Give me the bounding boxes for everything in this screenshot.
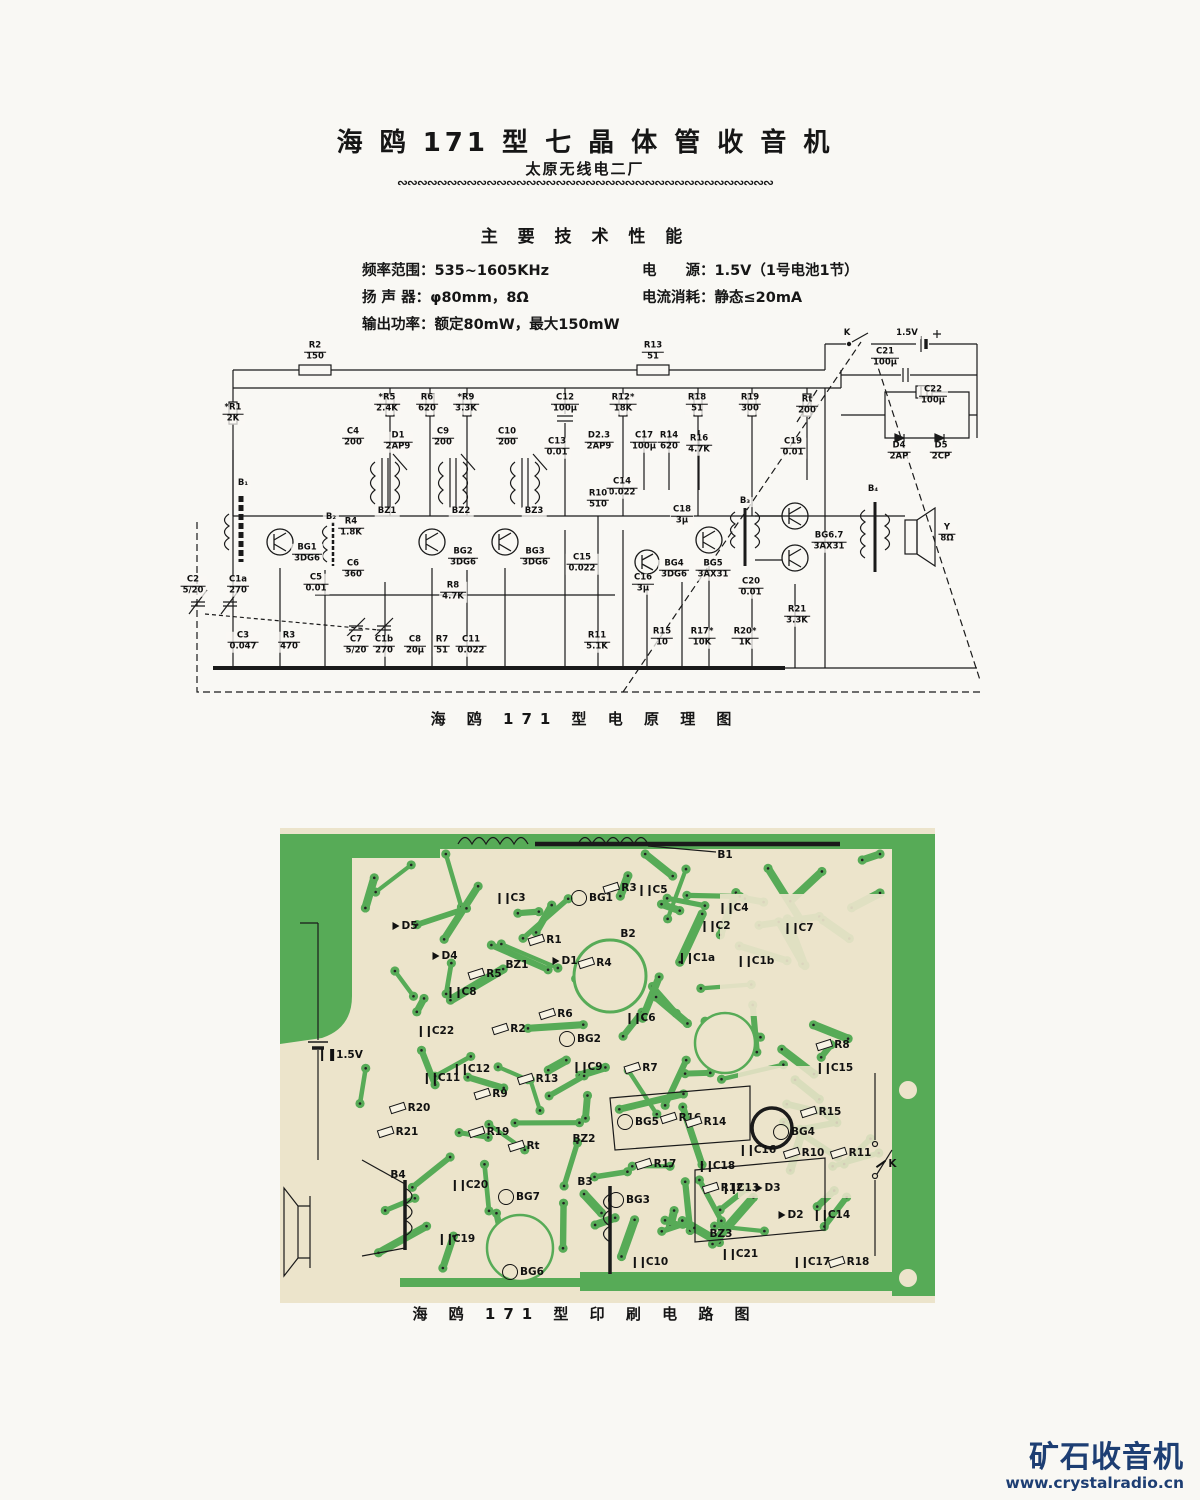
component-designator: C5 — [652, 884, 667, 896]
pcb-component-label: K — [875, 1158, 896, 1170]
component-symbol-glyph — [454, 1180, 464, 1191]
component-designator: C1b — [373, 636, 395, 646]
component-symbol-glyph — [685, 1116, 703, 1129]
component-designator: C6 — [640, 1012, 655, 1024]
component-value: 51 — [686, 404, 708, 415]
pcb-component-label: C9 — [575, 1061, 602, 1073]
schematic-component-label: C3 0.047 — [227, 632, 260, 653]
pcb-component-label: R6 — [539, 1008, 572, 1020]
schematic-component-label: R7 51 — [433, 636, 451, 657]
component-designator: R19 — [739, 394, 761, 404]
component-value: 620 — [416, 404, 438, 415]
schematic-component-label: R20* 1K — [731, 628, 760, 649]
component-value: 51 — [642, 352, 664, 363]
schematic-component-label: C10 200 — [495, 428, 519, 449]
component-designator: C18 — [713, 1160, 735, 1172]
component-designator: C9 — [587, 1061, 602, 1073]
component-symbol-glyph — [773, 1124, 789, 1140]
component-designator: BG4 — [659, 560, 689, 570]
component-value: 510 — [587, 500, 609, 511]
component-value: 100μ — [919, 396, 947, 407]
schematic-component-label: C17 100μ — [629, 432, 659, 453]
component-designator: C16 — [754, 1144, 776, 1156]
component-value: 2K — [223, 414, 244, 425]
component-designator: K — [842, 329, 853, 339]
component-designator: C11 — [438, 1072, 460, 1084]
component-designator: R20* — [732, 628, 759, 638]
pcb-component-label: C17 — [796, 1256, 830, 1268]
schematic-component-label: C2 5/20 — [180, 576, 207, 597]
component-value: 620 — [658, 442, 680, 453]
component-designator: C13 — [545, 438, 570, 448]
component-designator: R6 — [416, 394, 438, 404]
schematic-component-label: BZ1 — [375, 507, 400, 517]
pcb-component-label: BG2 — [559, 1031, 601, 1047]
component-value: 3DG6 — [659, 570, 689, 581]
pcb-component-label: C18 — [701, 1160, 735, 1172]
pcb-component-label: R10 — [784, 1147, 825, 1159]
schematic-component-label: BZ2 — [449, 507, 474, 517]
component-value: 470 — [278, 642, 300, 653]
component-designator: C19 — [453, 1233, 475, 1245]
component-value: 3DG6 — [520, 558, 550, 569]
watermark-site: www.crystalradio.cn — [1006, 1474, 1184, 1492]
pcb-component-label: R14 — [686, 1116, 727, 1128]
component-value: 150 — [304, 352, 326, 363]
component-designator: C18 — [671, 506, 693, 516]
component-designator: R8 — [440, 582, 466, 592]
pcb-component-label: C8 — [449, 986, 476, 998]
scanned-page: 海 鸥 171 型 七 晶 体 管 收 音 机 太原无线电二厂 ∾∾∾∾∾∾∾∾… — [0, 0, 1200, 1500]
component-designator: B₂ — [324, 513, 338, 523]
component-designator: R6 — [557, 1008, 572, 1020]
pcb-component-label: R4 — [578, 957, 611, 969]
component-value: 4.7K — [686, 445, 712, 456]
component-designator: B₄ — [866, 485, 880, 495]
component-value: 3AX31 — [696, 570, 731, 581]
schematic-component-label: BG5 3AX31 — [695, 560, 732, 581]
component-designator: BG1 — [292, 544, 322, 554]
component-designator: C20 — [466, 1179, 488, 1191]
component-value: 0.01 — [781, 448, 806, 459]
component-designator: BG4 — [791, 1126, 815, 1138]
pcb-component-label: R5 — [468, 968, 501, 980]
component-symbol-glyph — [796, 1257, 806, 1268]
component-symbol-glyph — [755, 1184, 762, 1192]
schematic-component-label: C4 200 — [341, 428, 365, 449]
schematic-component-label: 1.5V — [893, 329, 921, 339]
schematic-component-label: R6 620 — [415, 394, 439, 415]
component-value: 0.01 — [304, 584, 329, 595]
component-symbol-glyph — [634, 1257, 644, 1268]
schematic-component-label: C6 360 — [341, 560, 365, 581]
schematic-component-label: BG4 3DG6 — [658, 560, 690, 581]
component-symbol-glyph — [538, 1008, 556, 1021]
component-designator: R1 — [546, 934, 561, 946]
component-designator: K — [888, 1158, 896, 1170]
pcb-component-label: C16 — [742, 1144, 776, 1156]
component-designator: BZ3 — [523, 507, 546, 517]
schematic-component-label: C8 20μ — [403, 636, 427, 657]
component-designator: D5 — [401, 920, 417, 932]
component-symbol-glyph — [517, 1073, 535, 1086]
component-symbol-glyph — [721, 903, 731, 914]
component-designator: B₁ — [236, 479, 250, 489]
schematic-component-label: *R9 3.3K — [452, 394, 480, 415]
component-value: 2.4K — [374, 404, 400, 415]
component-symbol-glyph — [468, 1126, 486, 1139]
component-symbol-glyph — [571, 890, 587, 906]
component-designator: D4 — [441, 950, 457, 962]
component-symbol-glyph — [508, 1140, 526, 1153]
component-value: 3μ — [632, 584, 654, 595]
schematic-component-label: R13 51 — [641, 342, 665, 363]
schematic-component-label: C1a 270 — [226, 576, 250, 597]
component-value: 1.8K — [338, 528, 364, 539]
component-designator: BZ1 — [506, 959, 529, 971]
component-designator: R18 — [686, 394, 708, 404]
component-symbol-glyph — [828, 1256, 846, 1269]
component-designator: C3 — [228, 632, 259, 642]
component-designator: R14 — [658, 432, 680, 442]
schematic-component-label: B₄ — [865, 485, 881, 495]
component-symbol-glyph — [623, 1062, 641, 1075]
component-designator: R4 — [596, 957, 611, 969]
component-designator: R12* — [610, 394, 637, 404]
pcb-component-label: C12 — [456, 1063, 490, 1075]
component-symbol-glyph — [786, 923, 796, 934]
component-designator: B3 — [577, 1176, 592, 1188]
component-designator: Y — [938, 524, 955, 534]
schematic-component-label: BG3 3DG6 — [519, 548, 551, 569]
pcb-component-label: B1 — [717, 849, 732, 861]
component-symbol-glyph — [778, 1211, 785, 1219]
pcb-component-label: C19 — [441, 1233, 475, 1245]
component-symbol-glyph — [377, 1126, 395, 1139]
component-symbol-glyph — [800, 1106, 818, 1119]
pcb-component-label: R7 — [624, 1062, 657, 1074]
component-designator: BG2 — [577, 1033, 601, 1045]
pcb-component-label: C20 — [454, 1179, 488, 1191]
component-designator: D4 — [888, 442, 911, 452]
component-designator: C12 — [551, 394, 579, 404]
schematic-component-label: B₃ — [737, 497, 753, 507]
pcb-component-label: C6 — [628, 1012, 655, 1024]
component-symbol-glyph — [783, 1147, 801, 1160]
schematic-component-label: R10 510 — [586, 490, 610, 511]
component-designator: C2 — [715, 920, 730, 932]
component-designator: C16 — [632, 574, 654, 584]
component-designator: C8 — [461, 986, 476, 998]
component-designator: C3 — [510, 892, 525, 904]
pcb-component-label: BG3 — [608, 1192, 650, 1208]
pcb-component-label: D3 — [755, 1182, 780, 1194]
component-value: 200 — [796, 406, 818, 417]
component-designator: C22 — [919, 386, 947, 396]
pcb-component-label: R11 — [831, 1147, 872, 1159]
component-designator: C15 — [831, 1062, 853, 1074]
component-designator: BZ2 — [450, 507, 473, 517]
schematic-component-label: B₁ — [235, 479, 251, 489]
pcb-component-label: C3 — [498, 892, 525, 904]
component-designator: C14 — [828, 1209, 850, 1221]
component-value: 0.01 — [739, 588, 764, 599]
schematic-component-label: BG2 3DG6 — [447, 548, 479, 569]
pcb-component-label: C4 — [721, 902, 748, 914]
component-designator: B1 — [717, 849, 732, 861]
component-value: 270 — [373, 646, 395, 657]
component-designator: BZ1 — [376, 507, 399, 517]
component-symbol-glyph — [740, 956, 750, 967]
schematic-component-label: R18 51 — [685, 394, 709, 415]
component-value: 360 — [342, 570, 364, 581]
component-symbol-glyph — [498, 1189, 514, 1205]
component-symbol-glyph — [491, 1023, 509, 1036]
schematic-component-label: C15 0.022 — [566, 554, 599, 575]
component-value: 270 — [227, 586, 249, 597]
component-designator: D3 — [764, 1182, 780, 1194]
schematic-component-label: D4 2AP — [887, 442, 912, 463]
schematic-component-label: Rt 200 — [795, 396, 819, 417]
component-value: 0.022 — [567, 564, 598, 575]
component-designator: BZ2 — [573, 1133, 596, 1145]
component-designator: B2 — [620, 928, 635, 940]
component-designator: C21 — [736, 1248, 758, 1260]
component-symbol-glyph — [725, 1183, 735, 1194]
component-designator: C19 — [781, 438, 806, 448]
component-designator: R16 — [686, 435, 712, 445]
schematic-component-label: BG6.7 3AX31 — [811, 532, 848, 553]
schematic-component-label: C14 0.022 — [606, 478, 639, 499]
pcb-component-label: R18 — [829, 1256, 870, 1268]
component-symbol-glyph — [635, 1158, 653, 1171]
schematic-component-label: R4 1.8K — [337, 518, 365, 539]
pcb-layout-diagram: B1 C3 BG1 R3 C5 C4 D5 R1 — [280, 828, 935, 1303]
schematic-component-label: C12 100μ — [550, 394, 580, 415]
component-value: 5.1K — [584, 642, 610, 653]
component-value: 3.3K — [453, 404, 479, 415]
schematic-component-label: R11 5.1K — [583, 632, 611, 653]
component-designator: R17 — [654, 1158, 677, 1170]
component-value: 5/20 — [181, 586, 206, 597]
component-designator: B4 — [390, 1169, 405, 1181]
component-designator: C21 — [871, 348, 899, 358]
schematic-component-label: R8 4.7K — [439, 582, 467, 603]
component-symbol-glyph — [473, 1088, 491, 1101]
component-designator: Rt — [796, 396, 818, 406]
pcb-component-label: C21 — [724, 1248, 758, 1260]
pcb-component-label: BG4 — [773, 1124, 815, 1140]
component-value: 100μ — [551, 404, 579, 415]
component-value: 2CP — [930, 452, 952, 463]
component-symbol-glyph — [681, 953, 691, 964]
component-symbol-glyph — [432, 952, 439, 960]
component-designator: BG3 — [626, 1194, 650, 1206]
pcb-component-label: BG7 — [498, 1189, 540, 1205]
schematic-component-label: K — [841, 329, 854, 339]
schematic-component-label: R2 150 — [303, 342, 327, 363]
pcb-component-label: R15 — [801, 1106, 842, 1118]
pcb-component-label: C15 — [819, 1062, 853, 1074]
component-value: 0.022 — [607, 488, 638, 499]
component-symbol-glyph — [420, 1026, 430, 1037]
pcb-component-label: B2 — [620, 928, 635, 940]
schematic-component-label: *R5 2.4K — [373, 394, 401, 415]
component-symbol-glyph — [321, 1049, 334, 1061]
component-symbol-glyph — [640, 885, 650, 896]
component-designator: R2 — [304, 342, 326, 352]
schematic-caption: 海 鸥 171 型 电 原 理 图 — [0, 708, 1170, 729]
component-symbol-glyph — [703, 921, 713, 932]
schematic-component-label: D1 2AP9 — [383, 432, 414, 453]
component-value: 2AP — [888, 452, 911, 463]
component-symbol-glyph — [441, 1234, 451, 1245]
schematic-component-label: R12* 18K — [609, 394, 638, 415]
component-designator: BG7 — [516, 1191, 540, 1203]
pcb-component-label: BZ1 — [506, 959, 529, 971]
component-designator: D1 — [561, 955, 577, 967]
schematic-component-label: *R1 2K — [222, 404, 245, 425]
component-designator: C11 — [456, 636, 487, 646]
schematic-component-label: C18 3μ — [670, 506, 694, 527]
schematic-component-label: C9 200 — [431, 428, 455, 449]
component-value: 4.7K — [440, 592, 466, 603]
schematic-component-label: R15 10 — [650, 628, 674, 649]
component-designator: R10 — [802, 1147, 825, 1159]
component-designator: R3 — [621, 882, 636, 894]
pcb-component-label: R3 — [603, 882, 636, 894]
component-designator: R19 — [487, 1126, 510, 1138]
schematic-component-label: C16 3μ — [631, 574, 655, 595]
pcb-component-label: R21 — [378, 1126, 419, 1138]
component-value: 0.01 — [545, 448, 570, 459]
component-designator: 1.5V — [336, 1049, 363, 1061]
pcb-component-label: D4 — [432, 950, 457, 962]
component-designator: R3 — [278, 632, 300, 642]
component-designator: R15 — [819, 1106, 842, 1118]
component-designator: R7 — [434, 636, 450, 646]
component-symbol-glyph — [617, 1114, 633, 1130]
schematic-component-label: R19 300 — [738, 394, 762, 415]
component-designator: BG5 — [635, 1116, 659, 1128]
schematic-component-label: C20 0.01 — [738, 578, 765, 599]
schematic-component-label: R16 4.7K — [685, 435, 713, 456]
component-symbol-glyph — [724, 1249, 734, 1260]
component-symbol-glyph — [830, 1147, 848, 1160]
component-designator: C7 — [344, 636, 369, 646]
component-designator: R11 — [584, 632, 610, 642]
pcb-component-label: R13 — [518, 1073, 559, 1085]
component-designator: R14 — [704, 1116, 727, 1128]
component-value: 10 — [651, 638, 673, 649]
component-designator: *R9 — [453, 394, 479, 404]
schematic-component-label: C5 0.01 — [303, 574, 330, 595]
component-designator: R7 — [642, 1062, 657, 1074]
component-designator: R9 — [492, 1088, 507, 1100]
component-designator: C17 — [630, 432, 658, 442]
component-symbol-glyph — [426, 1073, 436, 1084]
pcb-component-label: C7 — [786, 922, 813, 934]
component-designator: R5 — [486, 968, 501, 980]
watermark: 矿石收音机 www.crystalradio.cn — [1006, 1441, 1184, 1492]
component-symbol-glyph — [602, 882, 620, 895]
pcb-component-label: C14 — [816, 1209, 850, 1221]
pcb-component-label: B3 — [577, 1176, 592, 1188]
schematic-diagram: R2 150 R13 51 K 1.5V C21 100μ *R1 2K *R5… — [185, 330, 995, 705]
schematic-component-label: R14 620 — [657, 432, 681, 453]
pcb-component-label: D1 — [552, 955, 577, 967]
component-symbol-glyph — [389, 1102, 407, 1115]
component-designator: R15 — [651, 628, 673, 638]
component-value: 300 — [739, 404, 761, 415]
component-value: 10K — [689, 638, 716, 649]
component-designator: R4 — [338, 518, 364, 528]
pcb-component-label: R17 — [636, 1158, 677, 1170]
component-value: 0.022 — [456, 646, 487, 657]
pcb-component-label: R8 — [816, 1039, 849, 1051]
component-designator: BG3 — [520, 548, 550, 558]
wave-divider: ∾∾∾∾∾∾∾∾∾∾∾∾∾∾∾∾∾∾∾∾∾∾∾∾∾∾∾∾∾∾∾∾∾∾∾∾∾∾ — [0, 176, 1170, 191]
component-value: 3.3K — [784, 616, 810, 627]
component-designator: R21 — [396, 1126, 419, 1138]
component-symbol-glyph — [702, 1182, 720, 1195]
component-designator: D2.3 — [585, 432, 614, 442]
pcb-component-label: C22 — [420, 1025, 454, 1037]
component-value: 2AP9 — [384, 442, 413, 453]
component-designator: C17 — [808, 1256, 830, 1268]
pcb-component-label: R9 — [474, 1088, 507, 1100]
component-symbol-glyph — [449, 987, 459, 998]
component-symbol-glyph — [575, 1062, 585, 1073]
component-symbol-glyph — [498, 893, 508, 904]
specs-left-column: 频率范围：535~1605KHz 扬 声 器：φ80mm，8Ω 输出功率：额定8… — [362, 258, 620, 339]
component-designator: R8 — [834, 1039, 849, 1051]
component-symbol-glyph — [876, 1160, 886, 1168]
component-symbol-glyph — [527, 934, 545, 947]
component-value: 200 — [342, 438, 364, 449]
component-designator: C10 — [496, 428, 518, 438]
schematic-component-label: C13 0.01 — [544, 438, 571, 459]
pcb-component-label: Rt — [508, 1140, 539, 1152]
component-designator: R17* — [689, 628, 716, 638]
component-symbol-glyph — [502, 1264, 518, 1280]
component-designator: *R5 — [374, 394, 400, 404]
schematic-component-label: C7 5/20 — [343, 636, 370, 657]
schematic-component-label: R21 3.3K — [783, 606, 811, 627]
component-symbol-glyph — [392, 922, 399, 930]
component-designator: C6 — [342, 560, 364, 570]
component-value: 18K — [610, 404, 637, 415]
component-designator: C20 — [739, 578, 764, 588]
component-designator: D1 — [384, 432, 413, 442]
pcb-component-label: 1.5V — [321, 1049, 363, 1061]
component-designator: BG2 — [448, 548, 478, 558]
component-value: 3μ — [671, 516, 693, 527]
schematic-component-label: C11 0.022 — [455, 636, 488, 657]
pcb-component-label: BZ3 — [710, 1228, 733, 1240]
schematic-component-label: BG1 3DG6 — [291, 544, 323, 565]
component-designator: 1.5V — [894, 329, 920, 339]
pcb-component-label: C11 — [426, 1072, 460, 1084]
component-designator: R13 — [536, 1073, 559, 1085]
schematic-component-label: D2.3 2AP9 — [584, 432, 615, 453]
component-designator: C4 — [733, 902, 748, 914]
component-designator: C5 — [304, 574, 329, 584]
component-designator: R11 — [849, 1147, 872, 1159]
schematic-component-label: Y 8Ω — [937, 524, 956, 545]
component-symbol-glyph — [577, 957, 595, 970]
component-designator: C2 — [181, 576, 206, 586]
